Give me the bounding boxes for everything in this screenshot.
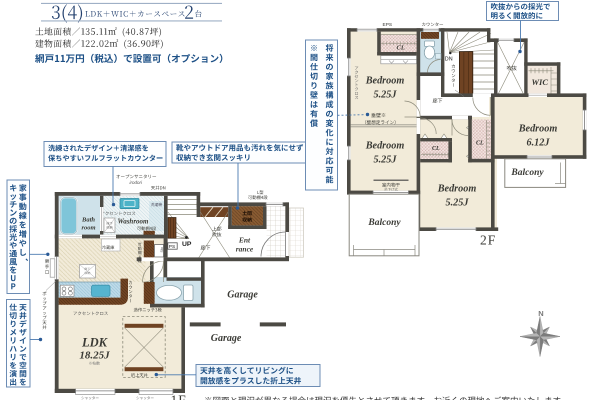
svg-text:N: N: [538, 309, 543, 318]
svg-text:UP: UP: [182, 241, 192, 248]
svg-text:WIC: WIC: [532, 77, 549, 87]
svg-text:PS: PS: [169, 244, 175, 250]
svg-text:Balcony: Balcony: [510, 168, 544, 178]
svg-text:Garage: Garage: [227, 290, 258, 301]
svg-text:6.12J: 6.12J: [527, 138, 551, 149]
svg-text:18.25J: 18.25J: [79, 350, 110, 362]
svg-text:1F: 1F: [171, 393, 187, 400]
svg-text:rance: rance: [236, 245, 254, 254]
svg-text:Ent: Ent: [238, 236, 251, 245]
svg-text:irodori: irodori: [130, 180, 144, 185]
svg-text:2F: 2F: [480, 233, 496, 248]
svg-text:Sto: Sto: [160, 247, 164, 252]
svg-text:Bath: Bath: [81, 217, 95, 224]
svg-text:5.25J: 5.25J: [446, 198, 470, 209]
svg-text:LDK: LDK: [81, 336, 109, 350]
svg-text:Bedroom: Bedroom: [437, 184, 477, 195]
svg-text:Bedroom: Bedroom: [518, 124, 558, 135]
svg-text:Washroom: Washroom: [118, 218, 150, 226]
svg-text:Bedroom: Bedroom: [365, 141, 405, 152]
svg-text:CL: CL: [397, 44, 405, 51]
svg-text:CL: CL: [432, 146, 440, 152]
svg-text:CL: CL: [476, 141, 484, 147]
svg-text:Balcony: Balcony: [367, 218, 401, 228]
svg-text:Garage: Garage: [211, 333, 242, 344]
svg-text:DN: DN: [445, 56, 453, 62]
svg-text:room: room: [81, 225, 95, 232]
svg-text:Bedroom: Bedroom: [365, 76, 405, 87]
svg-text:5.25J: 5.25J: [374, 90, 398, 101]
svg-text:5.25J: 5.25J: [374, 155, 398, 166]
svg-text:EPS: EPS: [383, 22, 393, 28]
